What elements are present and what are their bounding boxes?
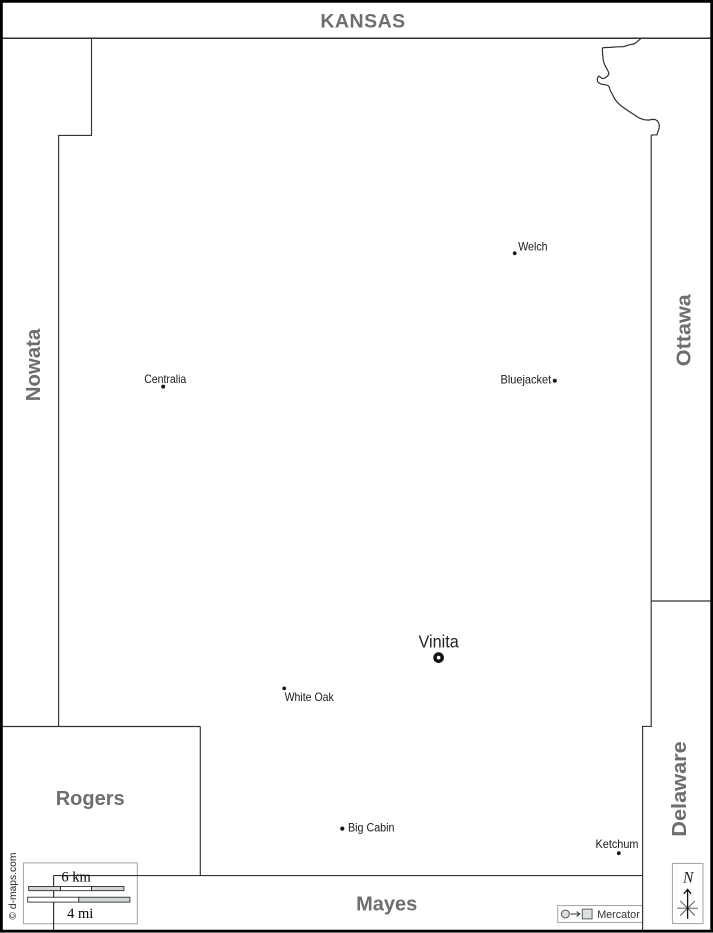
svg-text:KANSAS: KANSAS: [320, 10, 405, 32]
svg-text:Rogers: Rogers: [56, 788, 125, 810]
svg-text:Mayes: Mayes: [356, 893, 417, 915]
svg-text:White Oak: White Oak: [285, 691, 334, 704]
svg-text:N: N: [682, 870, 695, 887]
svg-text:© d-maps.com: © d-maps.com: [8, 852, 19, 919]
svg-text:Centralia: Centralia: [144, 373, 187, 386]
svg-text:6 km: 6 km: [61, 869, 91, 885]
svg-text:Mercator: Mercator: [597, 909, 640, 921]
svg-text:Bluejacket: Bluejacket: [501, 374, 552, 387]
svg-text:Ottawa: Ottawa: [673, 293, 695, 366]
svg-text:4 mi: 4 mi: [67, 906, 93, 922]
svg-text:Nowata: Nowata: [23, 328, 45, 401]
svg-text:Welch: Welch: [518, 241, 547, 254]
svg-text:Ketchum: Ketchum: [596, 838, 639, 851]
svg-text:Vinita: Vinita: [419, 632, 460, 652]
svg-text:Big Cabin: Big Cabin: [348, 822, 395, 835]
svg-text:Delaware: Delaware: [669, 741, 691, 837]
